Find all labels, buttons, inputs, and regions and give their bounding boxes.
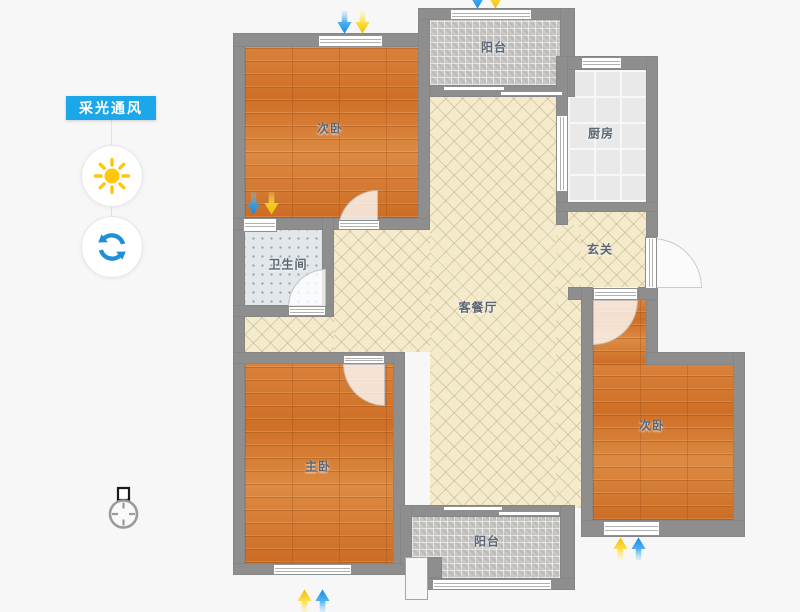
wall	[646, 352, 745, 365]
wall	[233, 33, 245, 575]
daylight-arrow-up	[297, 589, 312, 612]
room-label: 阳台	[481, 39, 507, 56]
window	[603, 521, 660, 536]
wall	[556, 202, 658, 212]
room-label: 阳台	[474, 533, 500, 550]
kitchen-sliding-door	[556, 115, 568, 192]
room-label: 客餐厅	[458, 299, 497, 316]
wall	[733, 352, 745, 537]
lighting-ventilation-panel-title: 采光通风	[66, 96, 156, 120]
entry-door-swing-arc	[652, 238, 702, 288]
window	[581, 57, 622, 69]
daylight-arrow-down	[264, 192, 279, 215]
window	[432, 579, 552, 590]
refresh-icon	[94, 229, 130, 265]
window	[450, 9, 532, 20]
daylight-button[interactable]	[81, 145, 143, 207]
room-living-dining[interactable]	[556, 225, 581, 508]
exterior-notch	[405, 557, 428, 600]
window	[273, 564, 352, 575]
daylight-arrow-up	[613, 537, 628, 560]
room-label: 卫生间	[268, 256, 307, 273]
room-label: 玄关	[587, 241, 613, 258]
wall	[400, 505, 412, 565]
door-leaf	[288, 306, 326, 316]
sun-icon	[94, 158, 130, 194]
compass-icon	[103, 486, 145, 534]
ventilation-refresh-button[interactable]	[81, 216, 143, 278]
wall	[581, 287, 593, 537]
room-label: 主卧	[305, 458, 331, 475]
room-label: 厨房	[588, 125, 614, 142]
daylight-arrow-down	[355, 11, 370, 34]
window	[318, 35, 383, 47]
sliding-door-panel	[443, 506, 503, 511]
sliding-door-panel	[500, 91, 563, 96]
wall	[418, 8, 430, 230]
sliding-door-panel	[498, 511, 560, 516]
daylight-arrow-down	[488, 0, 503, 9]
connector-line	[111, 207, 112, 216]
wind-arrow-up	[631, 537, 646, 560]
connector-line	[111, 120, 112, 146]
door-leaf	[343, 355, 385, 364]
window	[243, 218, 277, 232]
room-label: 次卧	[317, 120, 343, 137]
entry-door-leaf	[645, 237, 657, 289]
wind-arrow-down	[470, 0, 485, 9]
door-leaf	[338, 220, 380, 230]
wind-arrow-down	[337, 11, 352, 34]
room-living-dining[interactable]	[334, 230, 430, 352]
room-label: 次卧	[639, 417, 665, 434]
door-leaf	[593, 288, 638, 300]
sliding-door-panel	[443, 86, 505, 91]
room-living-dining[interactable]	[245, 317, 334, 352]
wind-arrow-down	[246, 192, 261, 215]
room-bedroom-right[interactable]	[593, 365, 733, 520]
wind-arrow-up	[315, 589, 330, 612]
wall	[428, 557, 442, 578]
